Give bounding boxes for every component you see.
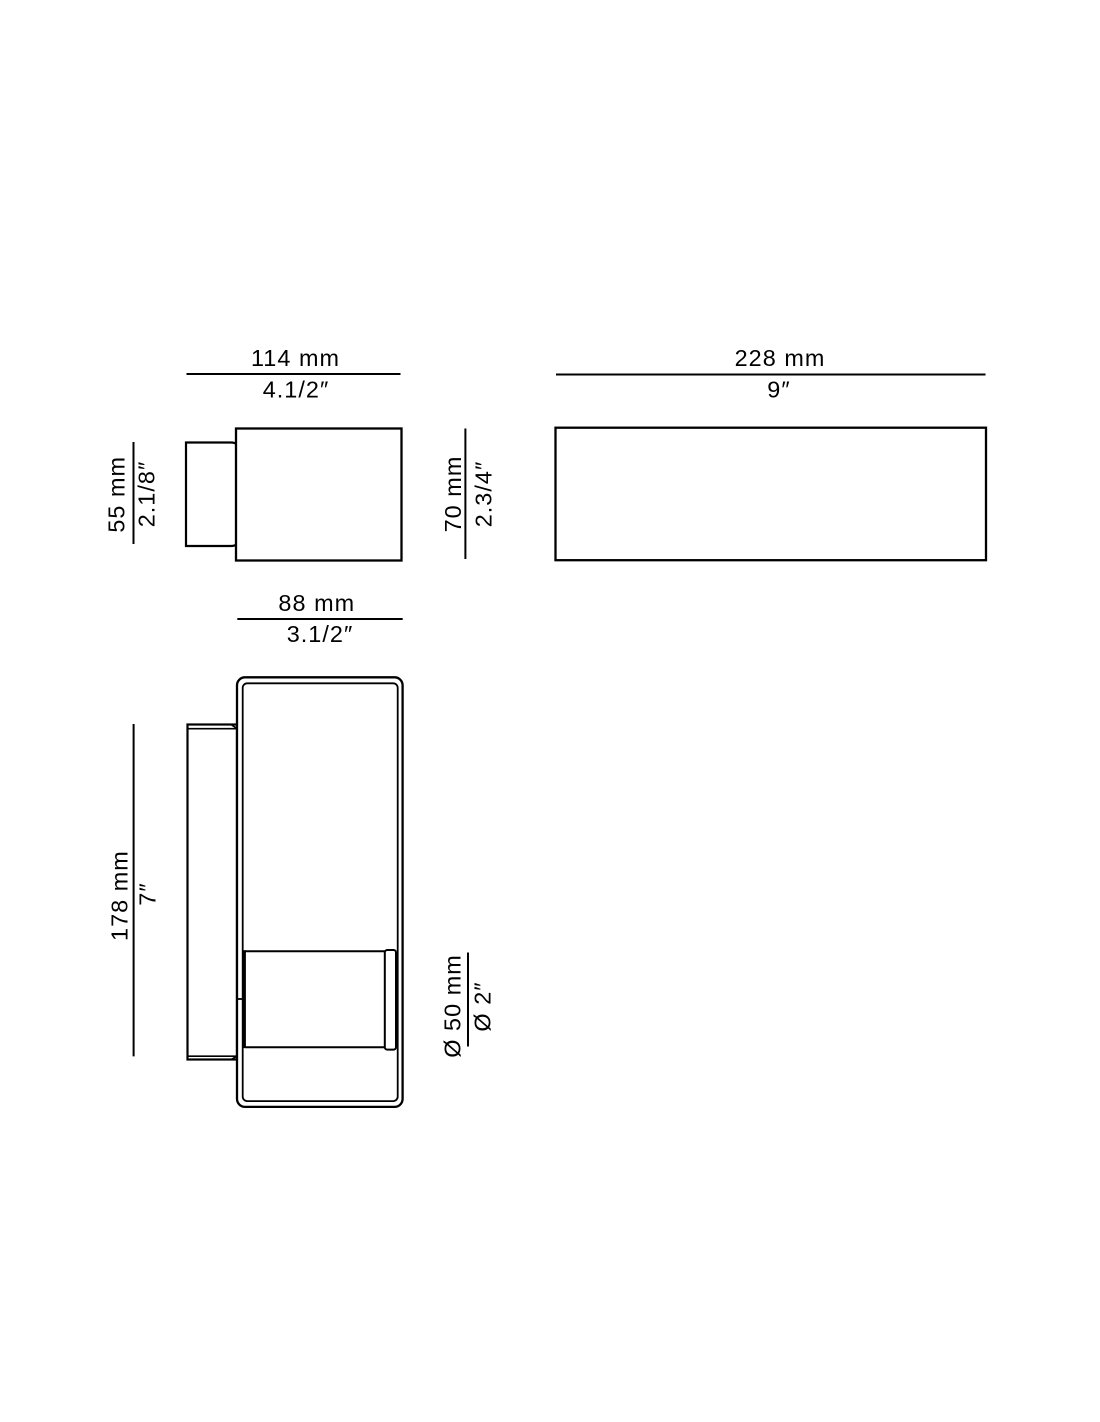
svg-text:4.1/2″: 4.1/2″ xyxy=(263,377,330,403)
svg-text:178 mm: 178 mm xyxy=(106,850,132,941)
svg-text:Ø 2″: Ø 2″ xyxy=(470,981,496,1031)
svg-text:70 mm: 70 mm xyxy=(440,456,466,533)
svg-text:7″: 7″ xyxy=(134,882,160,905)
svg-text:55 mm: 55 mm xyxy=(104,456,130,533)
svg-text:9″: 9″ xyxy=(767,377,790,403)
svg-text:2.3/4″: 2.3/4″ xyxy=(471,461,497,528)
svg-text:Ø 50 mm: Ø 50 mm xyxy=(439,954,465,1058)
svg-text:2.1/8″: 2.1/8″ xyxy=(134,461,160,528)
svg-text:228 mm: 228 mm xyxy=(735,345,826,371)
svg-text:3.1/2″: 3.1/2″ xyxy=(287,621,354,647)
svg-text:88 mm: 88 mm xyxy=(278,590,355,616)
svg-text:114 mm: 114 mm xyxy=(251,345,340,371)
